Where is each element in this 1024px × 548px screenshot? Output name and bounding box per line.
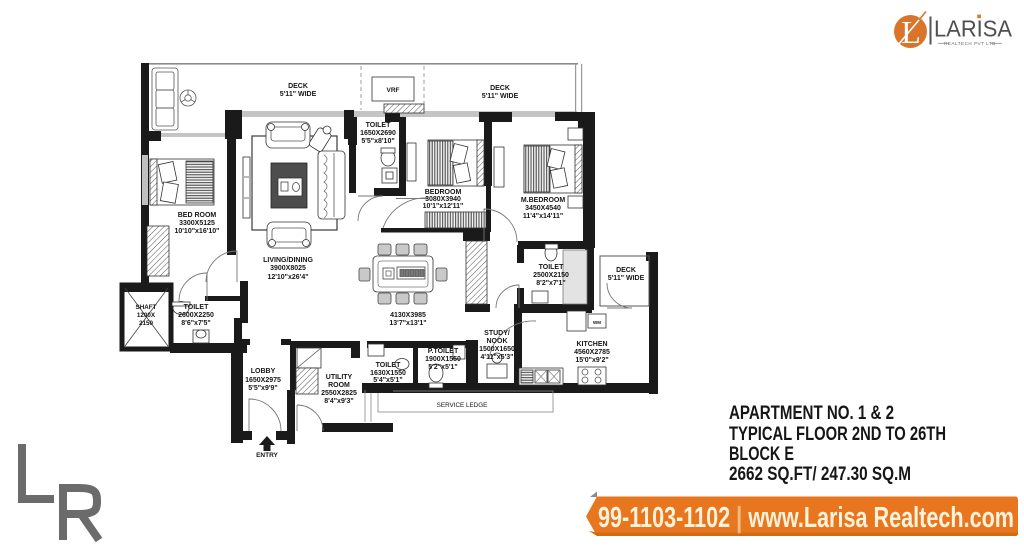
svg-text:3080X3940: 3080X3940	[425, 196, 461, 203]
svg-text:REALTECH PVT LTD: REALTECH PVT LTD	[944, 41, 996, 46]
svg-text:1900X1550: 1900X1550	[425, 356, 461, 363]
svg-text:WM: WM	[593, 320, 601, 325]
svg-text:TOILET: TOILET	[539, 264, 564, 271]
svg-text:4'11"x5'3": 4'11"x5'3"	[481, 354, 514, 361]
svg-text:ROOM: ROOM	[328, 382, 350, 389]
svg-text:VRF: VRF	[387, 87, 400, 94]
svg-text:1200X: 1200X	[137, 312, 156, 319]
svg-text:BED ROOM: BED ROOM	[178, 212, 217, 219]
svg-text:5'4"x5'1": 5'4"x5'1"	[373, 377, 402, 384]
svg-text:LARISA: LARISA	[934, 16, 1013, 42]
svg-text:3900X8025: 3900X8025	[270, 265, 306, 272]
svg-text:DECK: DECK	[616, 267, 636, 274]
svg-text:NOOK: NOOK	[487, 338, 508, 345]
svg-text:SHAFT: SHAFT	[136, 304, 157, 311]
svg-text:13'7"x13'1": 13'7"x13'1"	[389, 320, 426, 327]
svg-text:P.TOILET: P.TOILET	[428, 348, 459, 355]
svg-text:1500X1650: 1500X1650	[479, 346, 515, 353]
svg-text:L: L	[901, 14, 921, 50]
svg-text:2662 SQ.FT/ 247.30 SQ.M: 2662 SQ.FT/ 247.30 SQ.M	[729, 464, 911, 485]
svg-text:12'10"x26'4": 12'10"x26'4"	[267, 274, 308, 281]
svg-text:5'11" WIDE: 5'11" WIDE	[482, 93, 519, 100]
svg-text:ENTRY: ENTRY	[256, 452, 278, 459]
svg-text:LOBBY: LOBBY	[251, 368, 276, 375]
svg-text:10'1"x12'11": 10'1"x12'11"	[423, 203, 464, 210]
svg-text:BLOCK E: BLOCK E	[729, 444, 794, 465]
svg-text:2550X2825: 2550X2825	[321, 390, 357, 397]
svg-text:8'6"x7'5": 8'6"x7'5"	[181, 320, 210, 327]
svg-text:STUDY/: STUDY/	[484, 330, 510, 337]
svg-text:4130X3985: 4130X3985	[390, 312, 426, 319]
svg-text:DECK: DECK	[288, 83, 308, 90]
svg-text:5'11" WIDE: 5'11" WIDE	[280, 91, 317, 98]
svg-text:11'4"x14'11": 11'4"x14'11"	[523, 213, 563, 220]
svg-text:APARTMENT NO. 1 & 2: APARTMENT NO. 1 & 2	[729, 403, 894, 424]
svg-text:UTILITY: UTILITY	[326, 374, 353, 381]
svg-text:1630X1550: 1630X1550	[370, 370, 406, 377]
svg-text:TYPICAL FLOOR 2ND TO 26TH: TYPICAL FLOOR 2ND TO 26TH	[729, 424, 946, 445]
svg-text:2150: 2150	[139, 320, 154, 327]
svg-text:2500X2150: 2500X2150	[533, 272, 569, 279]
svg-text:SERVICE LEDGE: SERVICE LEDGE	[437, 402, 488, 409]
svg-text:1650X2690: 1650X2690	[360, 130, 396, 137]
svg-text:M.BEDROOM: M.BEDROOM	[521, 197, 566, 204]
svg-text:BEDROOM: BEDROOM	[425, 189, 462, 196]
svg-text:3450X4540: 3450X4540	[525, 205, 561, 212]
svg-text:TOILET: TOILET	[376, 362, 401, 369]
svg-text:1650X2975: 1650X2975	[245, 377, 281, 384]
svg-text:8'4"x9'3": 8'4"x9'3"	[324, 398, 353, 405]
svg-text:DECK: DECK	[490, 85, 510, 92]
svg-text:TOILET: TOILET	[184, 304, 209, 311]
svg-text:LIVING/DINING: LIVING/DINING	[263, 257, 313, 264]
svg-text:5'5"x8'10": 5'5"x8'10"	[361, 138, 394, 145]
svg-text:8'2"x7'1": 8'2"x7'1"	[536, 280, 565, 287]
svg-text:5'2"x5'1": 5'2"x5'1"	[428, 364, 457, 371]
svg-text:15'0"x9'2": 15'0"x9'2"	[575, 357, 608, 364]
svg-text:4560X2785: 4560X2785	[574, 349, 610, 356]
svg-text:5'5"x9'9": 5'5"x9'9"	[248, 385, 277, 392]
svg-text:KITCHEN: KITCHEN	[576, 341, 607, 348]
svg-text:TOILET: TOILET	[366, 122, 391, 129]
svg-text:10'10"x16'10": 10'10"x16'10"	[174, 228, 219, 235]
svg-text:5'11" WIDE: 5'11" WIDE	[608, 275, 645, 282]
svg-text:99-1103-1102 | www.Larisa Real: 99-1103-1102 | www.Larisa Realtech.com	[598, 502, 1014, 534]
svg-text:2600X2250: 2600X2250	[178, 312, 214, 319]
svg-text:3300X5125: 3300X5125	[179, 220, 215, 227]
